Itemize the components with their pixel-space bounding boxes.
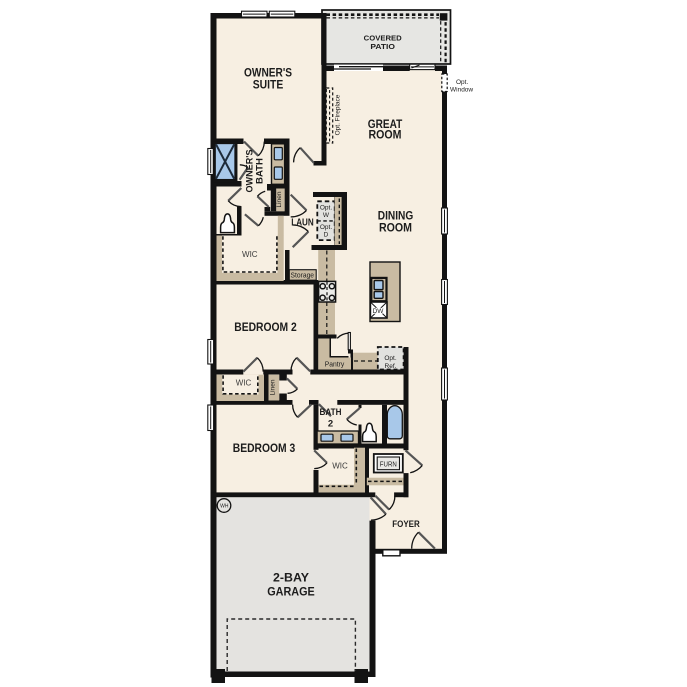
svg-text:SUITE: SUITE	[253, 80, 284, 92]
svg-text:Linen: Linen	[270, 379, 277, 395]
svg-text:Opt.: Opt.	[456, 79, 468, 86]
svg-text:DW: DW	[373, 308, 385, 315]
svg-text:FOYER: FOYER	[392, 519, 420, 530]
svg-text:WIC: WIC	[242, 250, 258, 259]
svg-text:Linen: Linen	[276, 191, 283, 207]
svg-text:GARAGE: GARAGE	[267, 587, 315, 599]
svg-text:W: W	[323, 212, 330, 219]
svg-text:LAUN: LAUN	[291, 218, 314, 229]
svg-text:ROOM: ROOM	[379, 223, 412, 235]
svg-text:Storage: Storage	[291, 271, 315, 280]
svg-text:WH: WH	[220, 503, 229, 509]
svg-text:ROOM: ROOM	[369, 130, 402, 142]
svg-text:BATH: BATH	[320, 407, 342, 418]
svg-text:PATIO: PATIO	[370, 42, 395, 51]
svg-text:Ref.: Ref.	[385, 363, 397, 370]
svg-text:Opt. Fireplace: Opt. Fireplace	[335, 94, 342, 135]
svg-text:FURN: FURN	[380, 459, 397, 468]
svg-text:WIC: WIC	[236, 379, 252, 388]
svg-text:Pantry: Pantry	[325, 360, 345, 369]
svg-text:BEDROOM 2: BEDROOM 2	[234, 322, 297, 334]
svg-text:Opt.: Opt.	[320, 205, 332, 212]
svg-text:Window: Window	[450, 87, 473, 94]
svg-text:Opt.: Opt.	[384, 355, 396, 362]
svg-text:WIC: WIC	[332, 462, 348, 471]
svg-text:DINING: DINING	[378, 211, 414, 223]
svg-text:OWNER'S: OWNER'S	[244, 68, 292, 80]
svg-text:BATH: BATH	[255, 158, 266, 184]
svg-text:2: 2	[328, 419, 333, 430]
svg-text:D: D	[324, 232, 329, 239]
svg-text:Opt.: Opt.	[320, 224, 332, 231]
svg-text:2-BAY: 2-BAY	[273, 573, 309, 585]
svg-text:BEDROOM 3: BEDROOM 3	[233, 443, 296, 455]
